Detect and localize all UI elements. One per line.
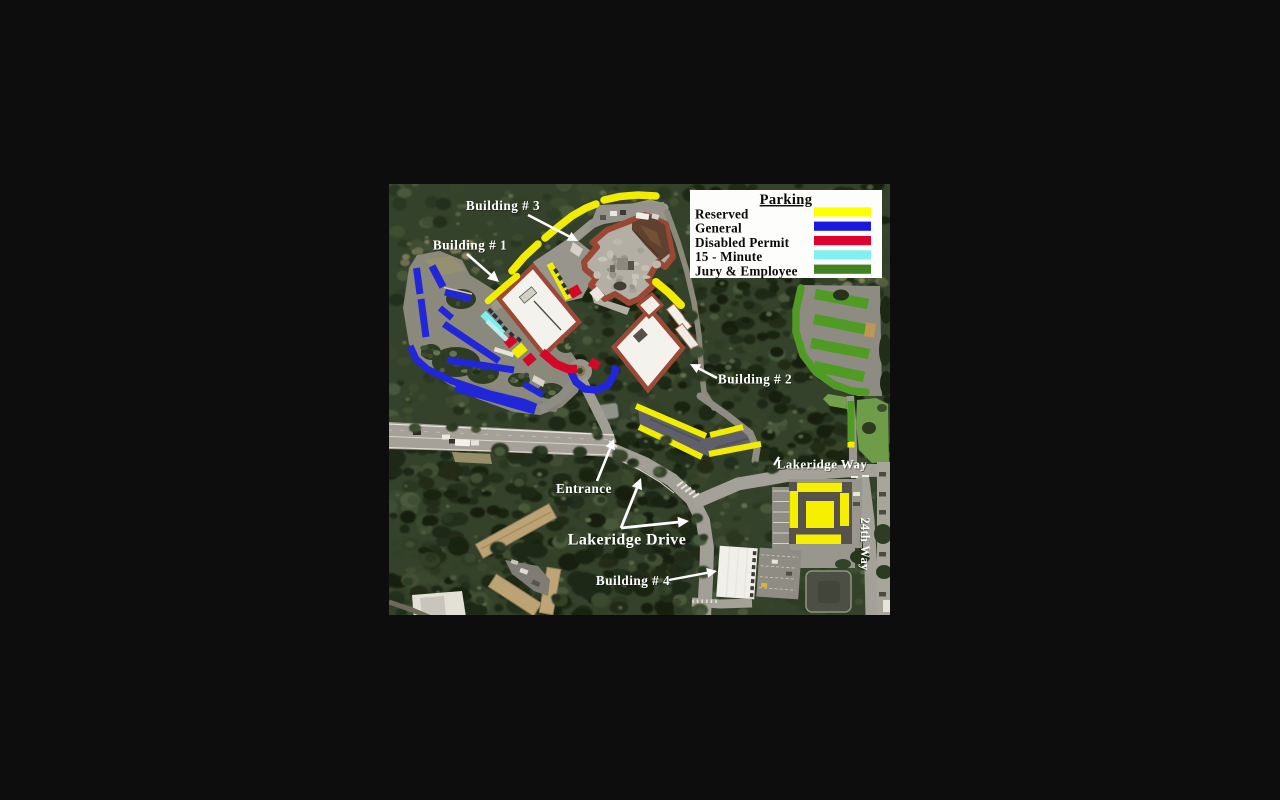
svg-text:15 - Minute: 15 - Minute [695,249,762,264]
svg-text:Entrance: Entrance [556,481,612,496]
svg-text:Building # 4: Building # 4 [596,573,670,588]
svg-text:24th Way: 24th Way [858,517,872,571]
svg-text:Jury & Employee: Jury & Employee [695,263,798,278]
svg-text:General: General [695,221,742,236]
svg-text:Lakeridge Drive: Lakeridge Drive [568,532,686,549]
svg-text:Building # 2: Building # 2 [718,372,792,387]
svg-text:Reserved: Reserved [695,207,749,222]
svg-text:Parking: Parking [760,192,813,208]
svg-text:Disabled Permit: Disabled Permit [695,235,790,250]
svg-text:Lakeridge Way: Lakeridge Way [777,457,868,472]
svg-text:Building # 3: Building # 3 [466,198,540,213]
svg-text:Building # 1: Building # 1 [433,238,507,253]
